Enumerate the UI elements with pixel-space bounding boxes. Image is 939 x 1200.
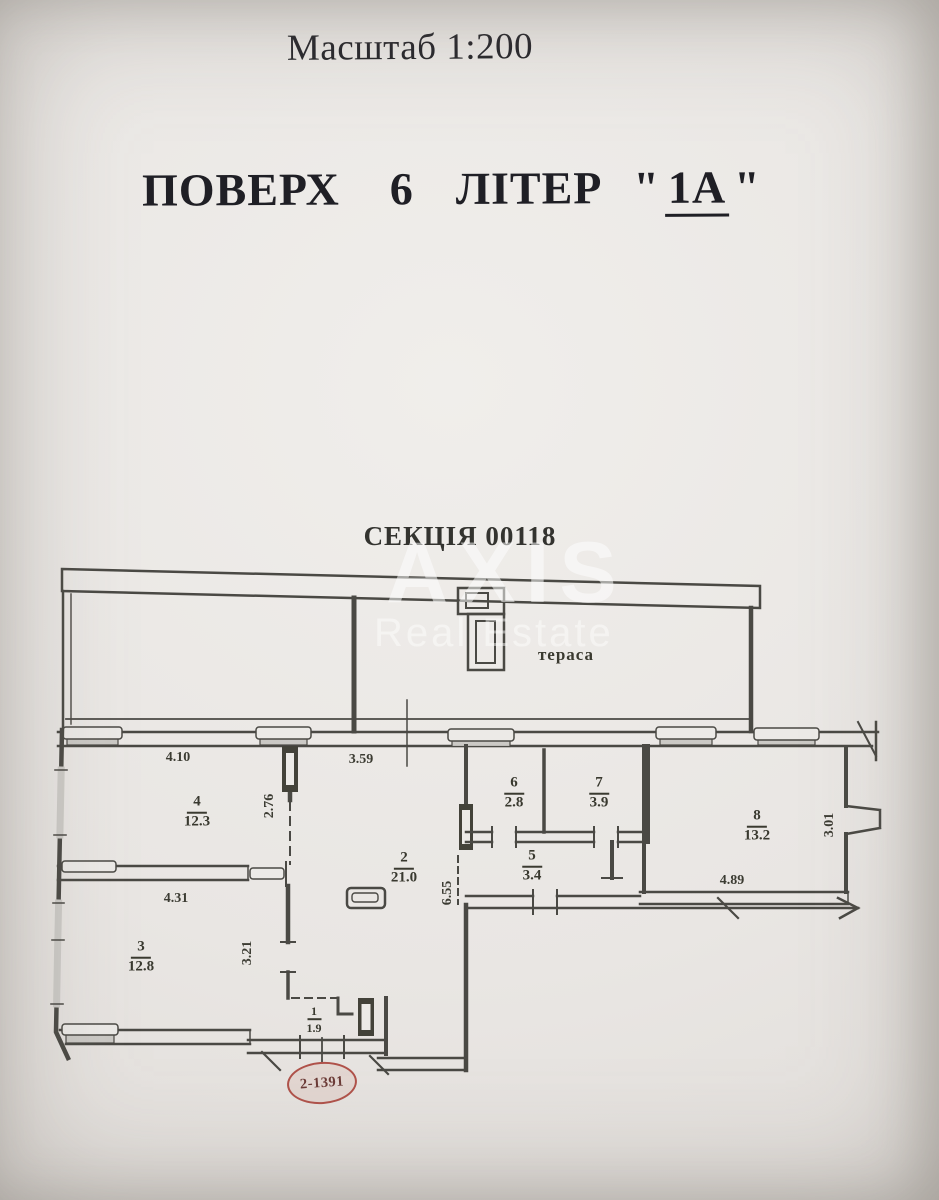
room-4-area: 12.3: [184, 812, 210, 829]
room-1-number: 1: [307, 1005, 321, 1020]
room-2-area: 21.0: [391, 868, 417, 885]
room-1-label: 1 1.9: [307, 1003, 322, 1037]
room-6-label: 6 2.8: [504, 775, 524, 812]
dimension-3-01: 3.01: [822, 813, 838, 838]
room-5-area: 3.4: [523, 866, 542, 883]
room-7-area: 3.9: [590, 793, 609, 810]
room-6-number: 6: [504, 776, 524, 795]
dimension-3-21: 3.21: [240, 941, 256, 966]
dimension-2-76: 2.76: [262, 794, 278, 819]
room-1-area: 1.9: [307, 1020, 322, 1035]
floorplan-svg: [0, 0, 939, 1200]
room-4-label: 4 12.3: [184, 794, 210, 831]
room-8-number: 8: [747, 809, 767, 828]
room-2-number: 2: [394, 851, 414, 870]
scanned-floorplan-page: { "page": {"background": "#e9e6e3", "ink…: [0, 0, 939, 1200]
room-8-label: 8 13.2: [744, 808, 770, 845]
room-2-label: 2 21.0: [391, 850, 417, 887]
room-7-label: 7 3.9: [589, 775, 609, 812]
room-8-area: 13.2: [744, 826, 770, 843]
dimension-4-89: 4.89: [720, 873, 745, 889]
room-6-area: 2.8: [505, 793, 524, 810]
room-3-area: 12.8: [128, 957, 154, 974]
room-5-number: 5: [522, 849, 542, 868]
dimension-3-59: 3.59: [349, 752, 374, 768]
terrace-label: тераса: [538, 645, 594, 665]
dimension-4-31: 4.31: [164, 891, 189, 907]
dimension-6-55: 6.55: [440, 881, 456, 906]
dimension-4-10: 4.10: [166, 750, 191, 766]
room-7-number: 7: [589, 776, 609, 795]
room-4-number: 4: [187, 795, 207, 814]
room-3-label: 3 12.8: [128, 939, 154, 976]
room-3-number: 3: [131, 940, 151, 959]
room-5-label: 5 3.4: [522, 848, 542, 885]
